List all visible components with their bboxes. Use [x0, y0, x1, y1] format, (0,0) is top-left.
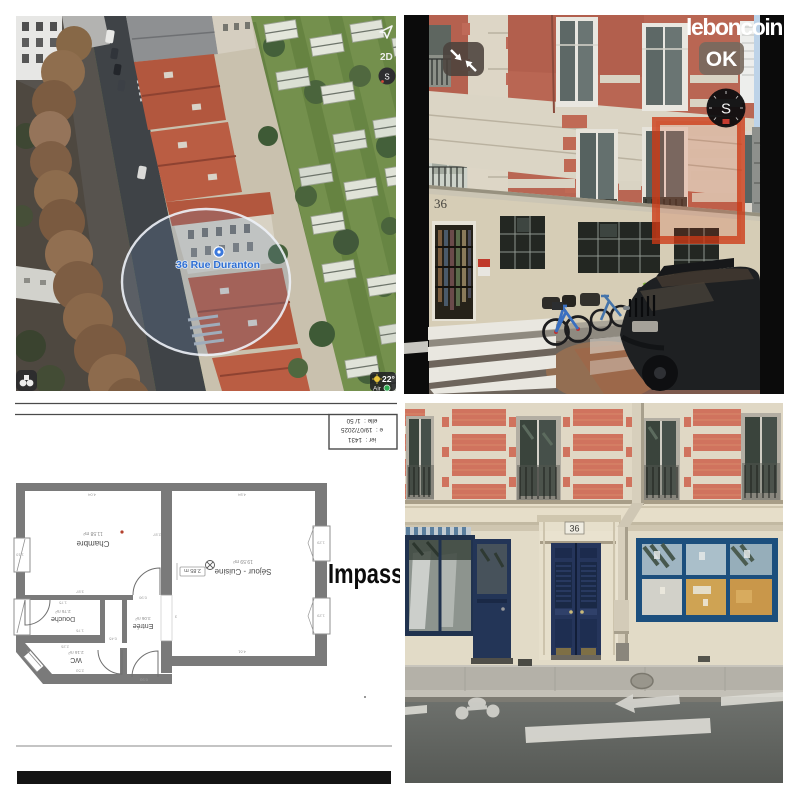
svg-text:Chambre: Chambre: [76, 539, 109, 548]
svg-text:36 Rue Duranton: 36 Rue Duranton: [176, 259, 260, 271]
svg-text:elle : 1/ 50: elle : 1/ 50: [346, 417, 377, 424]
svg-text:3.87: 3.87: [75, 590, 84, 595]
svg-text:leboncoin: leboncoin: [686, 15, 782, 40]
svg-text:2.85 m: 2.85 m: [184, 567, 201, 573]
svg-text:2D: 2D: [380, 52, 393, 63]
svg-text:2.53: 2.53: [75, 669, 84, 674]
svg-text:2.26: 2.26: [60, 645, 69, 650]
svg-text:0.45: 0.45: [108, 637, 117, 642]
svg-text:0.93: 0.93: [139, 678, 148, 683]
svg-text:S: S: [721, 101, 731, 118]
svg-text:Air: Air: [373, 386, 382, 392]
svg-text:36: 36: [434, 196, 448, 211]
svg-text:1.10: 1.10: [15, 553, 24, 558]
svg-text:3: 3: [174, 615, 177, 620]
svg-text:4.84: 4.84: [237, 493, 246, 498]
svg-text:1.29: 1.29: [316, 541, 325, 546]
svg-text:3.06 m²: 3.06 m²: [135, 616, 151, 621]
svg-text:4.04: 4.04: [87, 493, 96, 498]
svg-text:ier : 1431: ier : 1431: [348, 436, 377, 443]
svg-text:Impasse: Impasse: [328, 558, 400, 589]
svg-text:2.16 m²: 2.16 m²: [68, 650, 84, 655]
svg-text:19.59 m²: 19.59 m²: [233, 558, 253, 564]
svg-text:1.76: 1.76: [75, 629, 84, 634]
svg-text:36: 36: [569, 524, 579, 534]
svg-text:2.76 m²: 2.76 m²: [55, 609, 71, 614]
svg-text:1.29: 1.29: [316, 614, 325, 619]
svg-text:OK: OK: [706, 48, 738, 71]
svg-text:Entrée: Entrée: [133, 622, 154, 629]
svg-text:S: S: [384, 73, 389, 82]
svg-text:e : 19/07/2025: e : 19/07/2025: [340, 426, 383, 433]
svg-text:Douche: Douche: [51, 615, 75, 622]
svg-text:4.61: 4.61: [237, 650, 246, 655]
svg-text:22°: 22°: [382, 374, 395, 384]
svg-text:11.58 m²: 11.58 m²: [83, 530, 103, 536]
svg-text:1.75: 1.75: [58, 601, 67, 606]
svg-text:Séjour - Cuisine: Séjour - Cuisine: [214, 567, 271, 576]
svg-text:WC: WC: [70, 656, 82, 663]
svg-text:2.87: 2.87: [152, 533, 161, 538]
svg-text:0.90: 0.90: [138, 596, 147, 601]
